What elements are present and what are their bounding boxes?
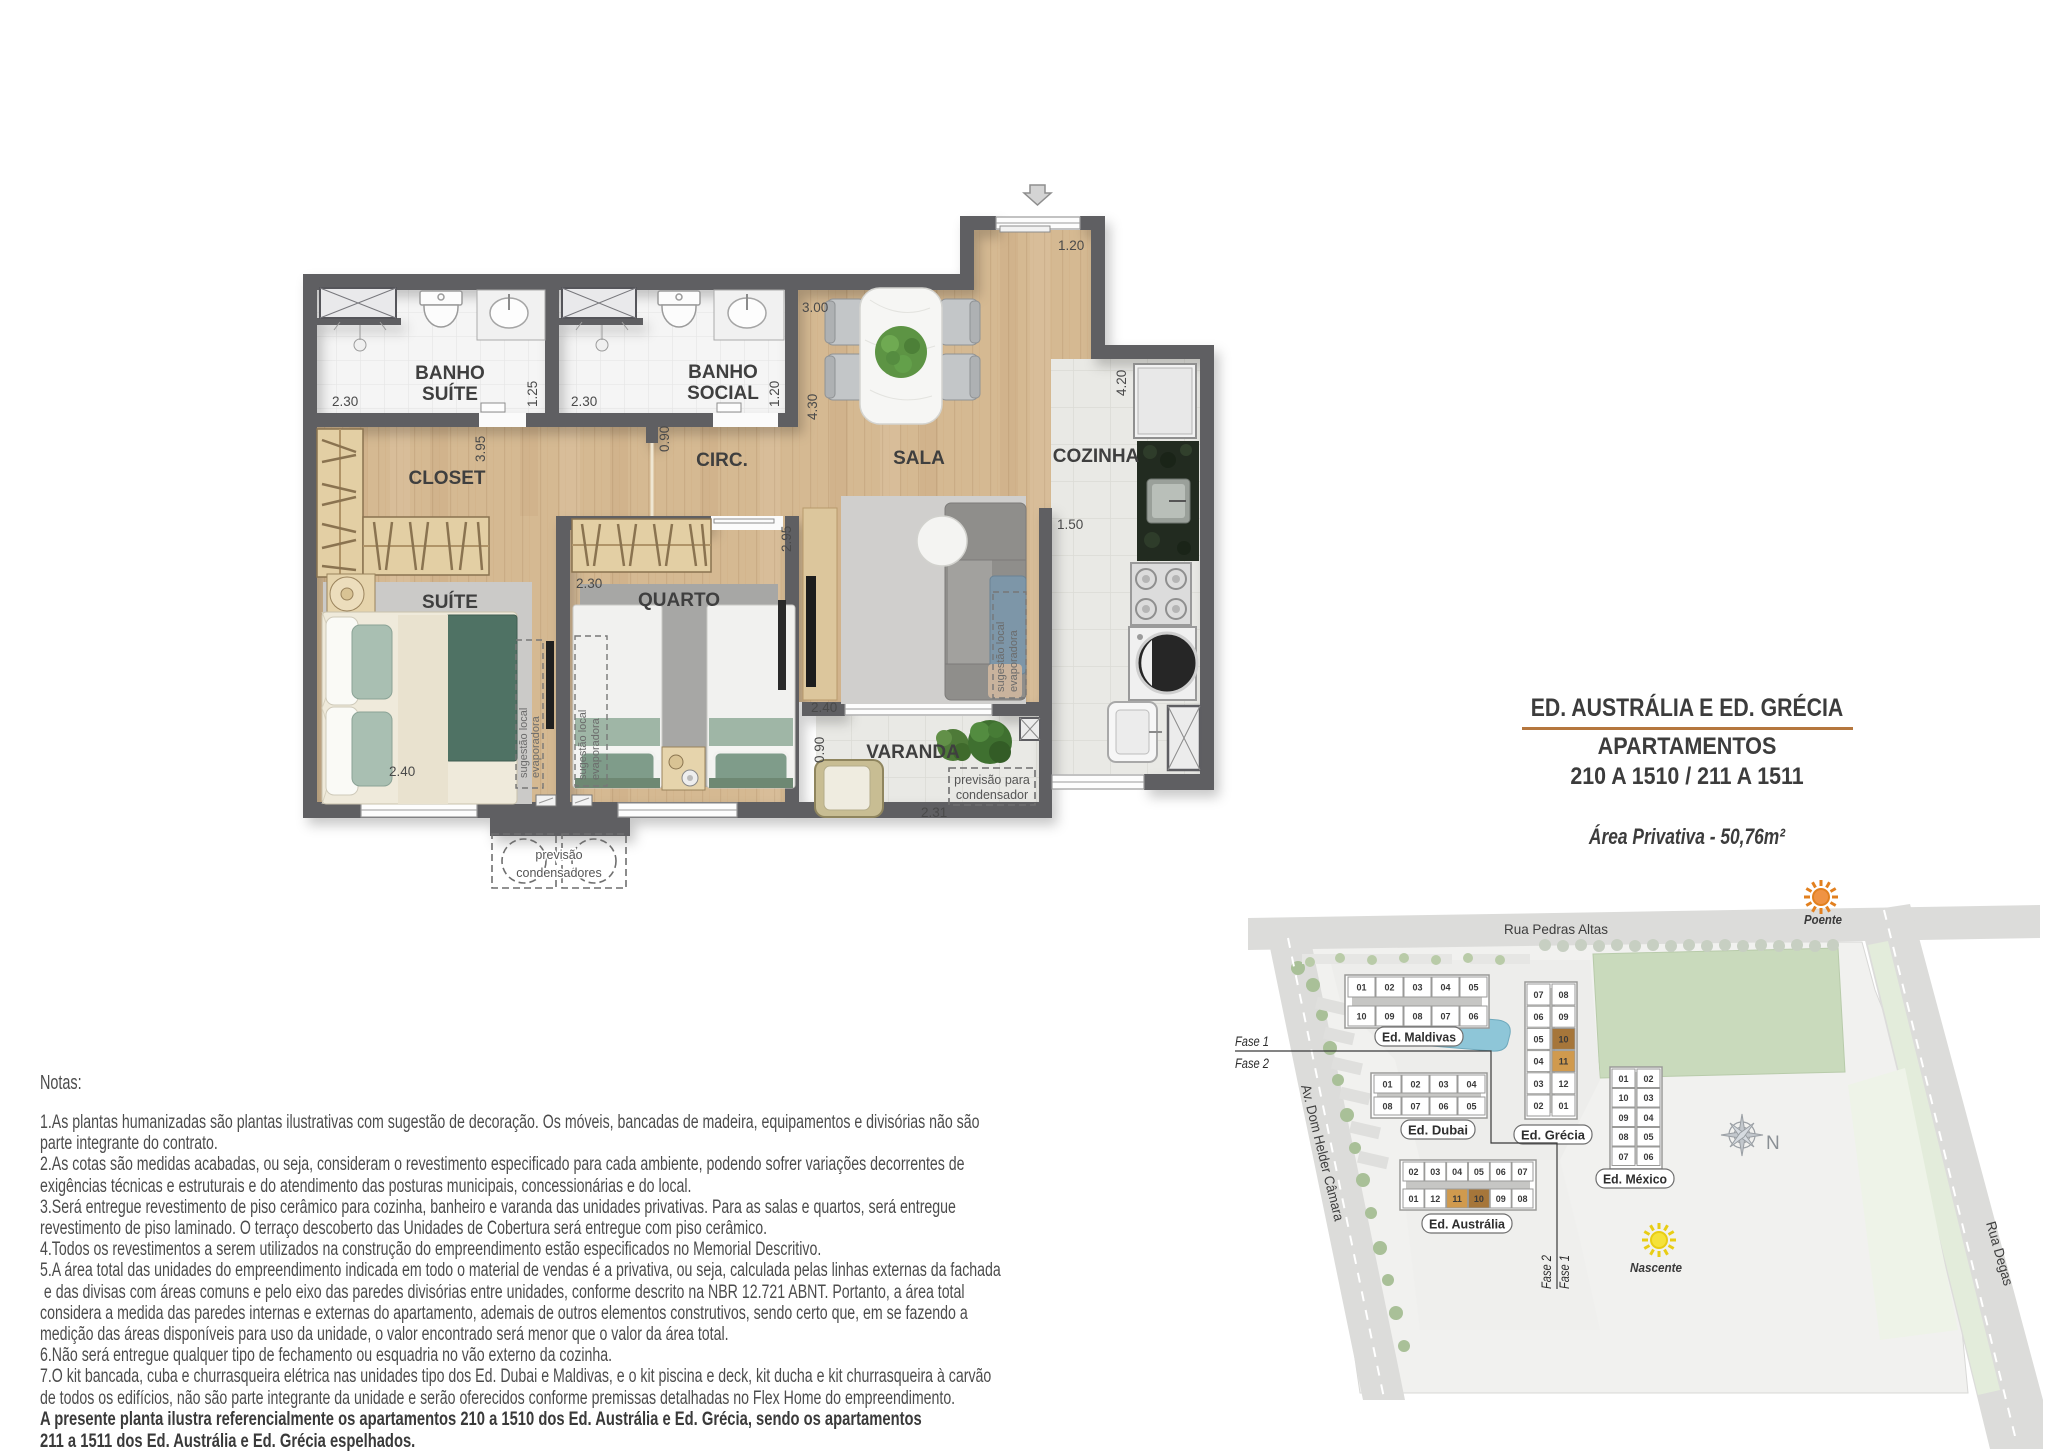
svg-text:08: 08 [1517,1194,1527,1204]
svg-text:11: 11 [1452,1194,1462,1204]
svg-text:COZINHA: COZINHA [1053,446,1140,467]
svg-text:11: 11 [1559,1057,1569,1067]
svg-text:08: 08 [1412,1012,1422,1022]
svg-text:06: 06 [1468,1012,1478,1022]
svg-text:Ed. Austrália: Ed. Austrália [1429,1217,1506,1232]
svg-text:02: 02 [1408,1167,1418,1177]
svg-text:12: 12 [1558,1079,1568,1089]
svg-text:previsão: previsão [535,848,582,862]
svg-text:Ed. Dubai: Ed. Dubai [1408,1123,1468,1138]
svg-text:06: 06 [1438,1102,1448,1112]
svg-text:1.50: 1.50 [1057,517,1083,532]
svg-text:01: 01 [1558,1101,1568,1111]
svg-text:07: 07 [1440,1012,1450,1022]
svg-text:SUÍTE: SUÍTE [422,591,478,613]
svg-text:sugestão local: sugestão local [577,710,589,780]
svg-text:04: 04 [1533,1057,1543,1067]
svg-text:04: 04 [1452,1167,1462,1177]
svg-text:Poente: Poente [1804,912,1842,927]
svg-text:05: 05 [1468,983,1478,993]
svg-text:evaporadora: evaporadora [530,715,542,778]
svg-text:SALA: SALA [893,448,945,469]
svg-text:03: 03 [1430,1167,1440,1177]
svg-text:04: 04 [1440,983,1450,993]
svg-text:sugestão local: sugestão local [995,622,1007,692]
svg-text:10: 10 [1356,1012,1366,1022]
svg-text:evaporadora: evaporadora [590,717,602,780]
svg-text:2.31: 2.31 [921,805,947,820]
svg-text:10: 10 [1618,1093,1628,1103]
svg-text:06: 06 [1496,1167,1506,1177]
svg-text:09: 09 [1558,1012,1568,1022]
svg-text:09: 09 [1384,1012,1394,1022]
svg-text:12: 12 [1430,1194,1440,1204]
svg-text:05: 05 [1466,1102,1476,1112]
svg-text:03: 03 [1412,983,1422,993]
svg-text:2.30: 2.30 [571,394,597,409]
svg-text:05: 05 [1474,1167,1484,1177]
svg-text:sugestão local: sugestão local [518,708,530,778]
svg-text:2.30: 2.30 [332,394,358,409]
svg-text:Nascente: Nascente [1630,1260,1682,1275]
svg-text:05: 05 [1533,1034,1543,1044]
svg-text:previsão para: previsão para [954,773,1030,787]
svg-text:07: 07 [1533,990,1543,1000]
svg-text:03: 03 [1533,1079,1543,1089]
svg-text:2.40: 2.40 [811,700,837,715]
svg-text:Ed. Maldivas: Ed. Maldivas [1382,1030,1456,1045]
svg-text:BANHO: BANHO [688,362,758,383]
svg-text:1.20: 1.20 [1058,238,1084,253]
svg-text:4.30: 4.30 [805,394,820,420]
svg-text:06: 06 [1533,1012,1543,1022]
svg-text:Ed. México: Ed. México [1603,1172,1667,1187]
svg-text:06: 06 [1643,1152,1653,1162]
svg-text:01: 01 [1618,1074,1628,1084]
svg-text:02: 02 [1410,1080,1420,1090]
svg-text:08: 08 [1558,990,1568,1000]
svg-text:CIRC.: CIRC. [696,450,748,471]
svg-text:Fase 2: Fase 2 [1235,1056,1269,1071]
svg-text:SUÍTE: SUÍTE [422,383,478,405]
svg-text:10: 10 [1474,1194,1484,1204]
svg-text:02: 02 [1384,983,1394,993]
svg-text:02: 02 [1533,1101,1543,1111]
svg-text:Rua Pedras Altas: Rua Pedras Altas [1504,921,1608,937]
svg-text:CLOSET: CLOSET [408,468,485,489]
svg-text:1.25: 1.25 [525,381,540,407]
svg-text:07: 07 [1410,1102,1420,1112]
svg-text:05: 05 [1643,1132,1653,1142]
svg-text:2.95: 2.95 [779,526,794,552]
svg-text:02: 02 [1643,1074,1653,1084]
svg-text:10: 10 [1558,1034,1568,1044]
svg-text:03: 03 [1438,1080,1448,1090]
svg-text:QUARTO: QUARTO [638,590,720,611]
svg-text:condensador: condensador [956,788,1028,802]
svg-text:09: 09 [1618,1113,1628,1123]
svg-text:1.20: 1.20 [767,381,782,407]
svg-text:Fase 2: Fase 2 [1539,1255,1554,1289]
svg-text:Ed. Grécia: Ed. Grécia [1521,1128,1586,1143]
svg-text:01: 01 [1356,983,1366,993]
svg-text:0.90: 0.90 [812,737,827,763]
svg-text:condensadores: condensadores [516,866,601,880]
svg-text:07: 07 [1517,1167,1527,1177]
svg-text:Fase 1: Fase 1 [1557,1255,1572,1289]
svg-text:2.30: 2.30 [576,576,602,591]
svg-text:N: N [1766,1133,1780,1154]
svg-text:2.40: 2.40 [389,764,415,779]
svg-text:0.90: 0.90 [657,426,672,452]
svg-text:07: 07 [1618,1152,1628,1162]
svg-text:09: 09 [1496,1194,1506,1204]
svg-text:VARANDA: VARANDA [866,742,960,763]
svg-text:08: 08 [1382,1102,1392,1112]
svg-text:01: 01 [1408,1194,1418,1204]
svg-text:01: 01 [1382,1080,1392,1090]
svg-text:SOCIAL: SOCIAL [687,383,759,404]
svg-text:03: 03 [1643,1093,1653,1103]
svg-text:4.20: 4.20 [1114,370,1129,396]
svg-text:Fase 1: Fase 1 [1235,1034,1269,1049]
svg-text:08: 08 [1618,1132,1628,1142]
svg-text:BANHO: BANHO [415,363,485,384]
svg-text:04: 04 [1643,1113,1653,1123]
svg-text:3.00: 3.00 [802,300,828,315]
svg-text:04: 04 [1466,1080,1476,1090]
svg-text:3.95: 3.95 [473,436,488,462]
svg-text:evaporadora: evaporadora [1008,629,1020,692]
